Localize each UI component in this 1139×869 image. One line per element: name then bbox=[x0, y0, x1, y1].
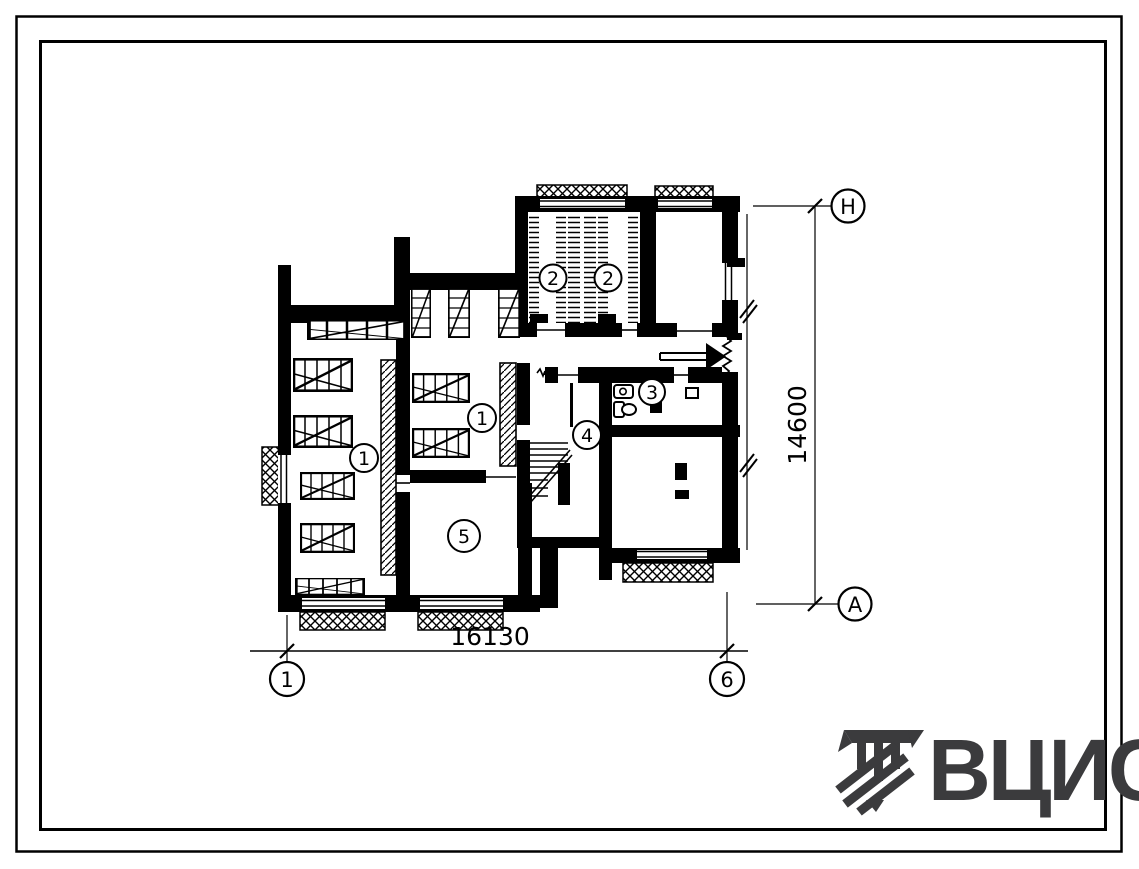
svg-text:2: 2 bbox=[602, 268, 614, 290]
wall-break-squiggle bbox=[537, 369, 545, 376]
room-label-1-left: 1 bbox=[350, 444, 378, 472]
room-label-5: 5 bbox=[448, 520, 480, 552]
svg-text:Н: Н bbox=[840, 195, 856, 219]
entrance-arrow bbox=[660, 343, 726, 370]
svg-text:А: А bbox=[848, 593, 863, 617]
axis-marker-a: А bbox=[839, 588, 872, 621]
floor-plan-drawing: 1 1 2 2 3 4 5 1613 bbox=[0, 0, 1139, 869]
room-label-2-right: 2 bbox=[595, 265, 622, 292]
drawing-sheet: 1 1 2 2 3 4 5 1613 bbox=[0, 0, 1139, 869]
axis-marker-6: 6 bbox=[710, 662, 744, 696]
room-label-1-right: 1 bbox=[468, 404, 496, 432]
axis-marker-h: Н bbox=[832, 190, 865, 223]
svg-text:5: 5 bbox=[458, 526, 470, 548]
svg-text:1: 1 bbox=[280, 668, 293, 692]
zigzag-joint bbox=[723, 337, 731, 374]
room-label-2-left: 2 bbox=[540, 265, 567, 292]
svg-text:6: 6 bbox=[720, 668, 733, 692]
dimension-height-value: 14600 bbox=[783, 385, 812, 465]
axis-marker-1: 1 bbox=[270, 662, 304, 696]
svg-text:1: 1 bbox=[358, 448, 370, 470]
dimension-width-value: 16130 bbox=[450, 622, 530, 651]
svg-text:1: 1 bbox=[476, 408, 488, 430]
room-label-4: 4 bbox=[573, 421, 601, 449]
dimension-right: 14600 Н А bbox=[753, 190, 872, 621]
room-label-3: 3 bbox=[639, 379, 665, 405]
logo-emblem-icon bbox=[838, 730, 924, 812]
logo: ВЦИС bbox=[838, 722, 1139, 819]
svg-text:3: 3 bbox=[646, 382, 658, 404]
svg-text:2: 2 bbox=[547, 268, 559, 290]
logo-text: ВЦИС bbox=[928, 722, 1139, 819]
svg-text:4: 4 bbox=[581, 425, 593, 447]
